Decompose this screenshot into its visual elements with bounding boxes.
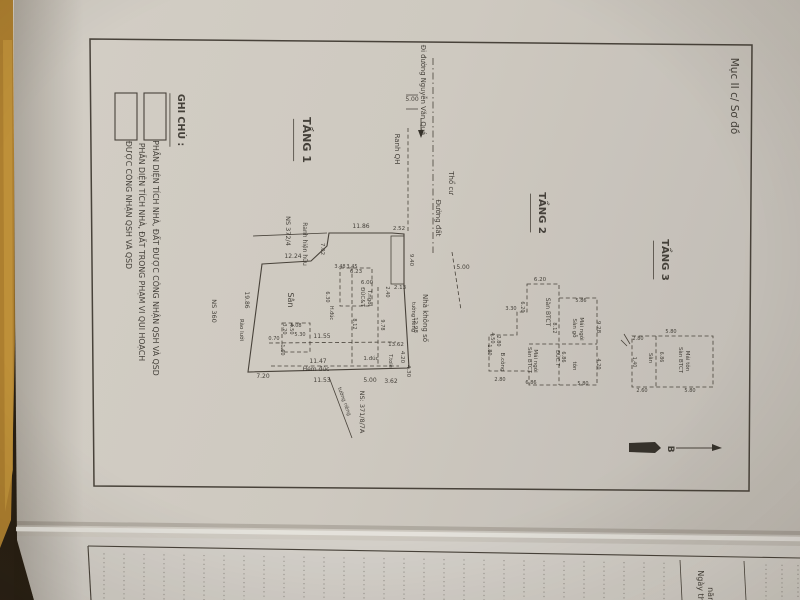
- photo-warm-tint: [0, 0, 800, 600]
- scanned-survey-photo: Photographed Vietnamese cadastral certif…: [0, 0, 800, 600]
